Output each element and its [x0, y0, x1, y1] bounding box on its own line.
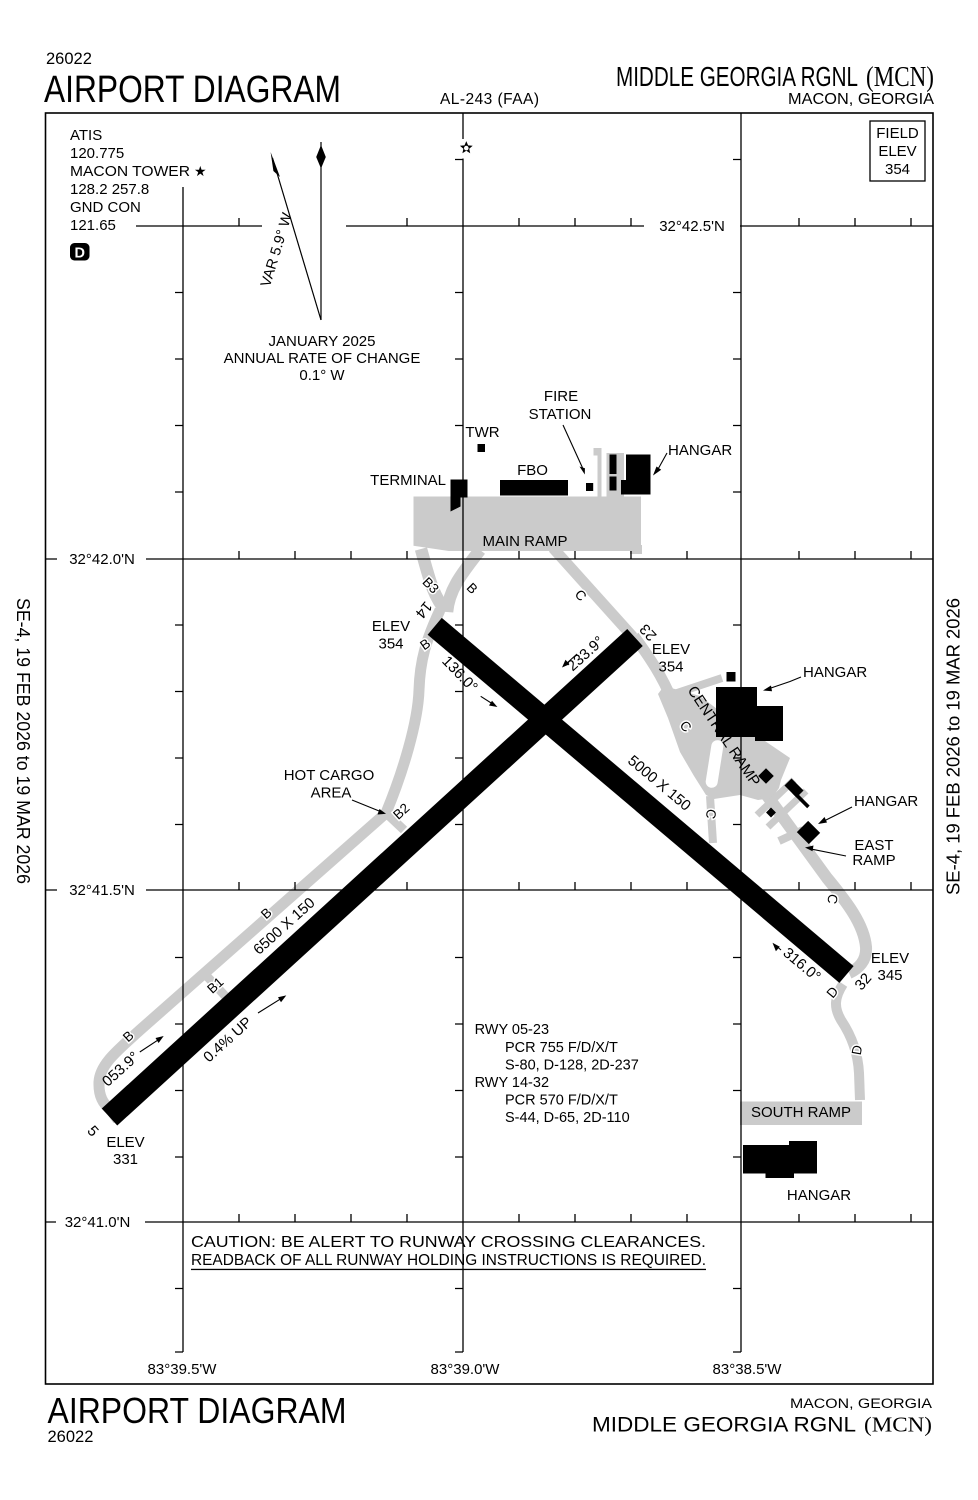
svg-text:121.65: 121.65 — [70, 217, 116, 234]
svg-text:ANNUAL RATE OF CHANGE: ANNUAL RATE OF CHANGE — [224, 350, 421, 367]
svg-text:26022: 26022 — [46, 50, 92, 68]
svg-text:354: 354 — [378, 636, 403, 653]
svg-text:TERMINAL: TERMINAL — [370, 472, 446, 489]
svg-text:ELEV: ELEV — [372, 618, 410, 635]
svg-text:32°42.0'N: 32°42.0'N — [69, 551, 135, 568]
svg-text:READBACK OF ALL RUNWAY HOLDING: READBACK OF ALL RUNWAY HOLDING INSTRUCTI… — [191, 1252, 706, 1269]
svg-text:ELEV: ELEV — [652, 641, 690, 658]
svg-text:354: 354 — [885, 161, 910, 178]
svg-text:AL-243 (FAA): AL-243 (FAA) — [440, 91, 539, 108]
svg-text:128.2 257.8: 128.2 257.8 — [70, 181, 149, 198]
svg-text:FIELD: FIELD — [876, 125, 919, 142]
svg-text:FIRE: FIRE — [544, 388, 578, 405]
svg-text:MACON, GEORGIA: MACON, GEORGIA — [790, 1396, 932, 1411]
svg-text:ATIS: ATIS — [70, 127, 102, 144]
svg-text:RWY 14-32: RWY 14-32 — [475, 1075, 549, 1091]
svg-text:PCR 755 F/D/X/T: PCR 755 F/D/X/T — [505, 1040, 618, 1056]
svg-text:345: 345 — [877, 967, 902, 984]
svg-text:331: 331 — [113, 1151, 138, 1168]
svg-text:MAIN RAMP: MAIN RAMP — [482, 533, 567, 550]
svg-text:SE-4, 19 FEB 2026 to 19 MAR 20: SE-4, 19 FEB 2026 to 19 MAR 2026 — [943, 598, 964, 895]
svg-text:★: ★ — [194, 163, 207, 179]
svg-text:SE-4, 19 FEB 2026 to 19 MAR 20: SE-4, 19 FEB 2026 to 19 MAR 2026 — [13, 598, 34, 884]
svg-text:AREA: AREA — [311, 785, 352, 802]
svg-text:FBO: FBO — [517, 462, 548, 479]
svg-text:(MCN): (MCN) — [866, 62, 934, 93]
svg-text:0.1° W: 0.1° W — [299, 367, 345, 384]
svg-text:D: D — [74, 246, 84, 262]
svg-text:S-80, D-128, 2D-237: S-80, D-128, 2D-237 — [505, 1058, 639, 1074]
svg-text:MIDDLE GEORGIA RGNL: MIDDLE GEORGIA RGNL — [592, 1414, 856, 1437]
svg-text:HANGAR: HANGAR — [668, 442, 732, 459]
svg-text:PCR 570 F/D/X/T: PCR 570 F/D/X/T — [505, 1093, 618, 1109]
svg-text:JANUARY 2025: JANUARY 2025 — [268, 333, 375, 350]
svg-text:ELEV: ELEV — [871, 950, 909, 967]
svg-text:GND CON: GND CON — [70, 199, 141, 216]
svg-text:AIRPORT DIAGRAM: AIRPORT DIAGRAM — [48, 1390, 347, 1431]
svg-text:83°39.0'W: 83°39.0'W — [431, 1361, 501, 1378]
svg-text:32°42.5'N: 32°42.5'N — [659, 218, 725, 235]
svg-text:HANGAR: HANGAR — [803, 664, 867, 681]
svg-text:AIRPORT DIAGRAM: AIRPORT DIAGRAM — [44, 69, 341, 111]
svg-text:ELEV: ELEV — [106, 1134, 144, 1151]
svg-text:RAMP: RAMP — [852, 852, 895, 869]
svg-text:120.775: 120.775 — [70, 145, 124, 162]
svg-text:TWR: TWR — [465, 424, 499, 441]
svg-text:HANGAR: HANGAR — [854, 793, 918, 810]
svg-text:(MCN): (MCN) — [864, 1413, 932, 1437]
svg-text:MIDDLE GEORGIA RGNL: MIDDLE GEORGIA RGNL — [616, 61, 858, 92]
svg-text:STATION: STATION — [529, 406, 592, 423]
svg-text:354: 354 — [658, 659, 683, 676]
svg-text:RWY 05-23: RWY 05-23 — [475, 1022, 549, 1038]
svg-text:HOT CARGO: HOT CARGO — [284, 767, 375, 784]
svg-text:32°41.5'N: 32°41.5'N — [69, 882, 135, 899]
svg-text:83°38.5'W: 83°38.5'W — [713, 1361, 783, 1378]
svg-text:32°41.0'N: 32°41.0'N — [65, 1214, 131, 1231]
svg-text:MACON, GEORGIA: MACON, GEORGIA — [788, 91, 935, 108]
svg-text:S-44, D-65, 2D-110: S-44, D-65, 2D-110 — [505, 1110, 630, 1126]
svg-text:ELEV: ELEV — [878, 143, 916, 160]
svg-text:83°39.5'W: 83°39.5'W — [148, 1361, 218, 1378]
svg-text:HANGAR: HANGAR — [787, 1187, 851, 1204]
svg-text:CAUTION: BE ALERT TO RUNWAY CR: CAUTION: BE ALERT TO RUNWAY CROSSING CLE… — [191, 1234, 706, 1251]
svg-text:MACON TOWER: MACON TOWER — [70, 163, 190, 180]
svg-text:26022: 26022 — [48, 1428, 94, 1446]
svg-text:SOUTH RAMP: SOUTH RAMP — [751, 1104, 851, 1121]
